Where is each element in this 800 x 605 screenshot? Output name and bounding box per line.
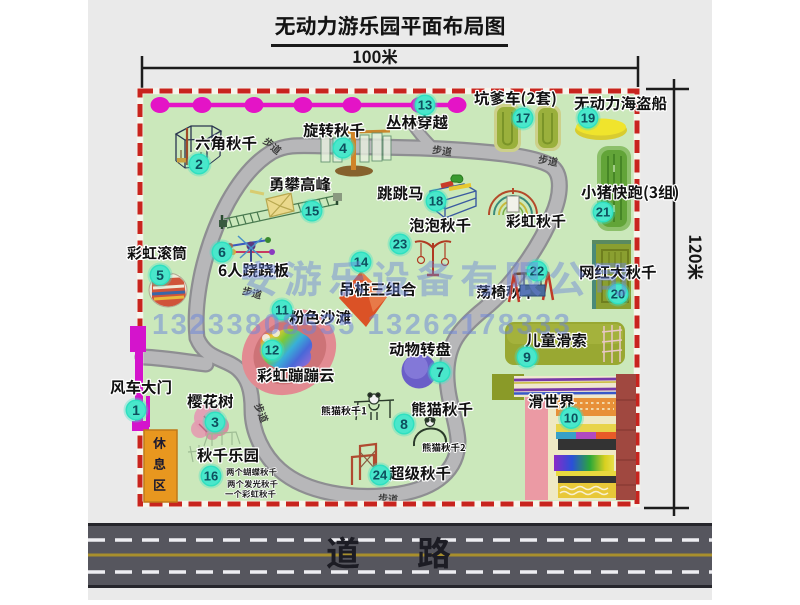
svg-text:21: 21 — [596, 205, 610, 220]
svg-text:10: 10 — [564, 411, 578, 426]
svg-text:13: 13 — [418, 98, 432, 113]
svg-text:18: 18 — [429, 194, 443, 209]
svg-text:13233808535 13262178333: 13233808535 13262178333 — [152, 309, 572, 341]
svg-text:3: 3 — [211, 414, 219, 430]
svg-text:12: 12 — [265, 343, 279, 358]
svg-text:6: 6 — [218, 244, 226, 260]
svg-text:4: 4 — [339, 140, 347, 156]
svg-text:5: 5 — [156, 267, 164, 283]
svg-text:23: 23 — [393, 237, 407, 252]
svg-text:19: 19 — [581, 111, 595, 126]
svg-text:2: 2 — [195, 156, 203, 172]
svg-text:24: 24 — [373, 468, 388, 483]
svg-text:16: 16 — [204, 469, 218, 484]
svg-text:9: 9 — [523, 349, 531, 365]
svg-text:1: 1 — [132, 402, 140, 418]
svg-text:8: 8 — [400, 416, 408, 432]
svg-text:15: 15 — [305, 204, 319, 219]
svg-text:17: 17 — [516, 111, 530, 126]
svg-text:7: 7 — [436, 364, 444, 380]
